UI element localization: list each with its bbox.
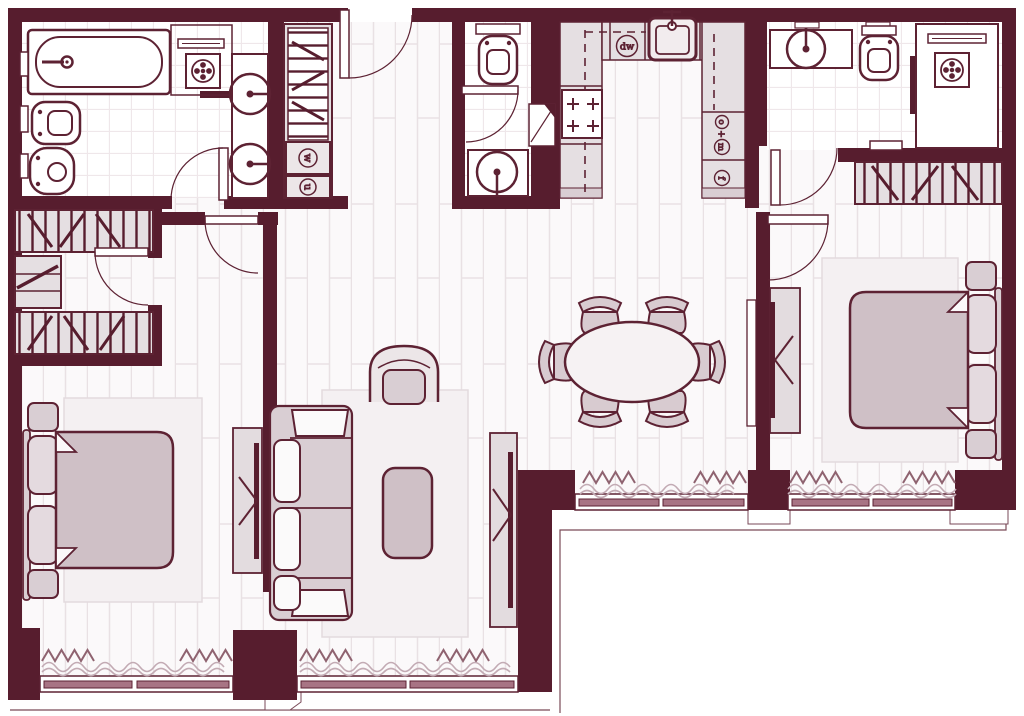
wall-wc-west [452,22,465,198]
svg-text:+: + [716,130,726,138]
extractor-fan-icon [186,54,220,88]
floor-plan: w u [0,0,1024,716]
wc-vanity [468,150,528,196]
bidet [30,148,74,194]
shelf-unit [15,256,61,308]
svg-text:o: o [716,119,726,124]
wall-living-east [518,470,552,692]
wardrobe-row2 [15,312,153,354]
wall-top-left [8,8,348,22]
back-cushion [274,440,300,502]
nightstand [28,570,58,598]
tv-unit-bedroom1 [233,428,262,573]
toilet2 [860,26,898,80]
tv-unit-living [490,433,517,627]
sofa [270,406,352,620]
wall-bathroom2-west [753,22,767,146]
extractor-fan2-icon [935,53,969,87]
shower2 [916,24,998,148]
bathtub [28,30,170,94]
nightstand [966,262,996,290]
counter-right [702,22,745,198]
pillow [28,506,58,564]
arm-cushion [292,410,348,436]
pier-bedroom2-window [955,470,1016,510]
tv-screen [770,302,775,418]
radiator [747,300,756,426]
washer-label: w [302,154,313,163]
wardrobe-row1 [15,210,153,252]
tv-screen [508,452,513,608]
wall-closet-north [8,196,160,209]
bedroom2-wardrobe [855,162,1002,204]
dryer-label: u [302,184,313,191]
svg-text:m: m [716,143,726,151]
bench [870,141,902,150]
counter-left-cap [560,188,602,198]
wc-toilet [476,24,520,84]
back-cushion [274,508,300,570]
wall-wc-east-a [531,22,544,104]
armchair [370,346,438,404]
wall-bathroom1-closet [268,22,284,198]
pillow [966,365,996,423]
nightstand [966,430,996,458]
wall-bedroom2-west [756,222,770,470]
wall-wc-east-b [531,146,544,198]
dishwasher: dw [617,36,638,57]
pillow [966,295,996,353]
wall-top-right [412,8,1016,22]
living-window [297,676,518,692]
dining-table [565,322,699,402]
wall-bedroom1-north [150,212,205,225]
pillow [28,436,58,494]
double-vanity [230,54,270,198]
nightstand [28,403,58,431]
laundry-closet: w u [284,24,332,198]
wall-right [1002,8,1016,510]
pier-bottom-left [8,628,40,700]
cooktop [562,90,602,138]
pier-bottom-middle [233,630,297,700]
counter-right-cap [702,188,745,198]
kitchen-sink [649,10,696,60]
wall-bathroom2-south [838,148,1002,162]
coffee-table [383,468,432,558]
pier-dining-window [748,470,790,510]
dishwasher-label: dw [620,42,634,53]
duct-shaft [529,104,555,146]
wall-accessories [20,52,28,178]
toilet [32,102,80,144]
back-cushion [274,576,300,610]
tv-unit-bedroom2 [770,288,800,433]
bedroom1-window [40,676,233,692]
